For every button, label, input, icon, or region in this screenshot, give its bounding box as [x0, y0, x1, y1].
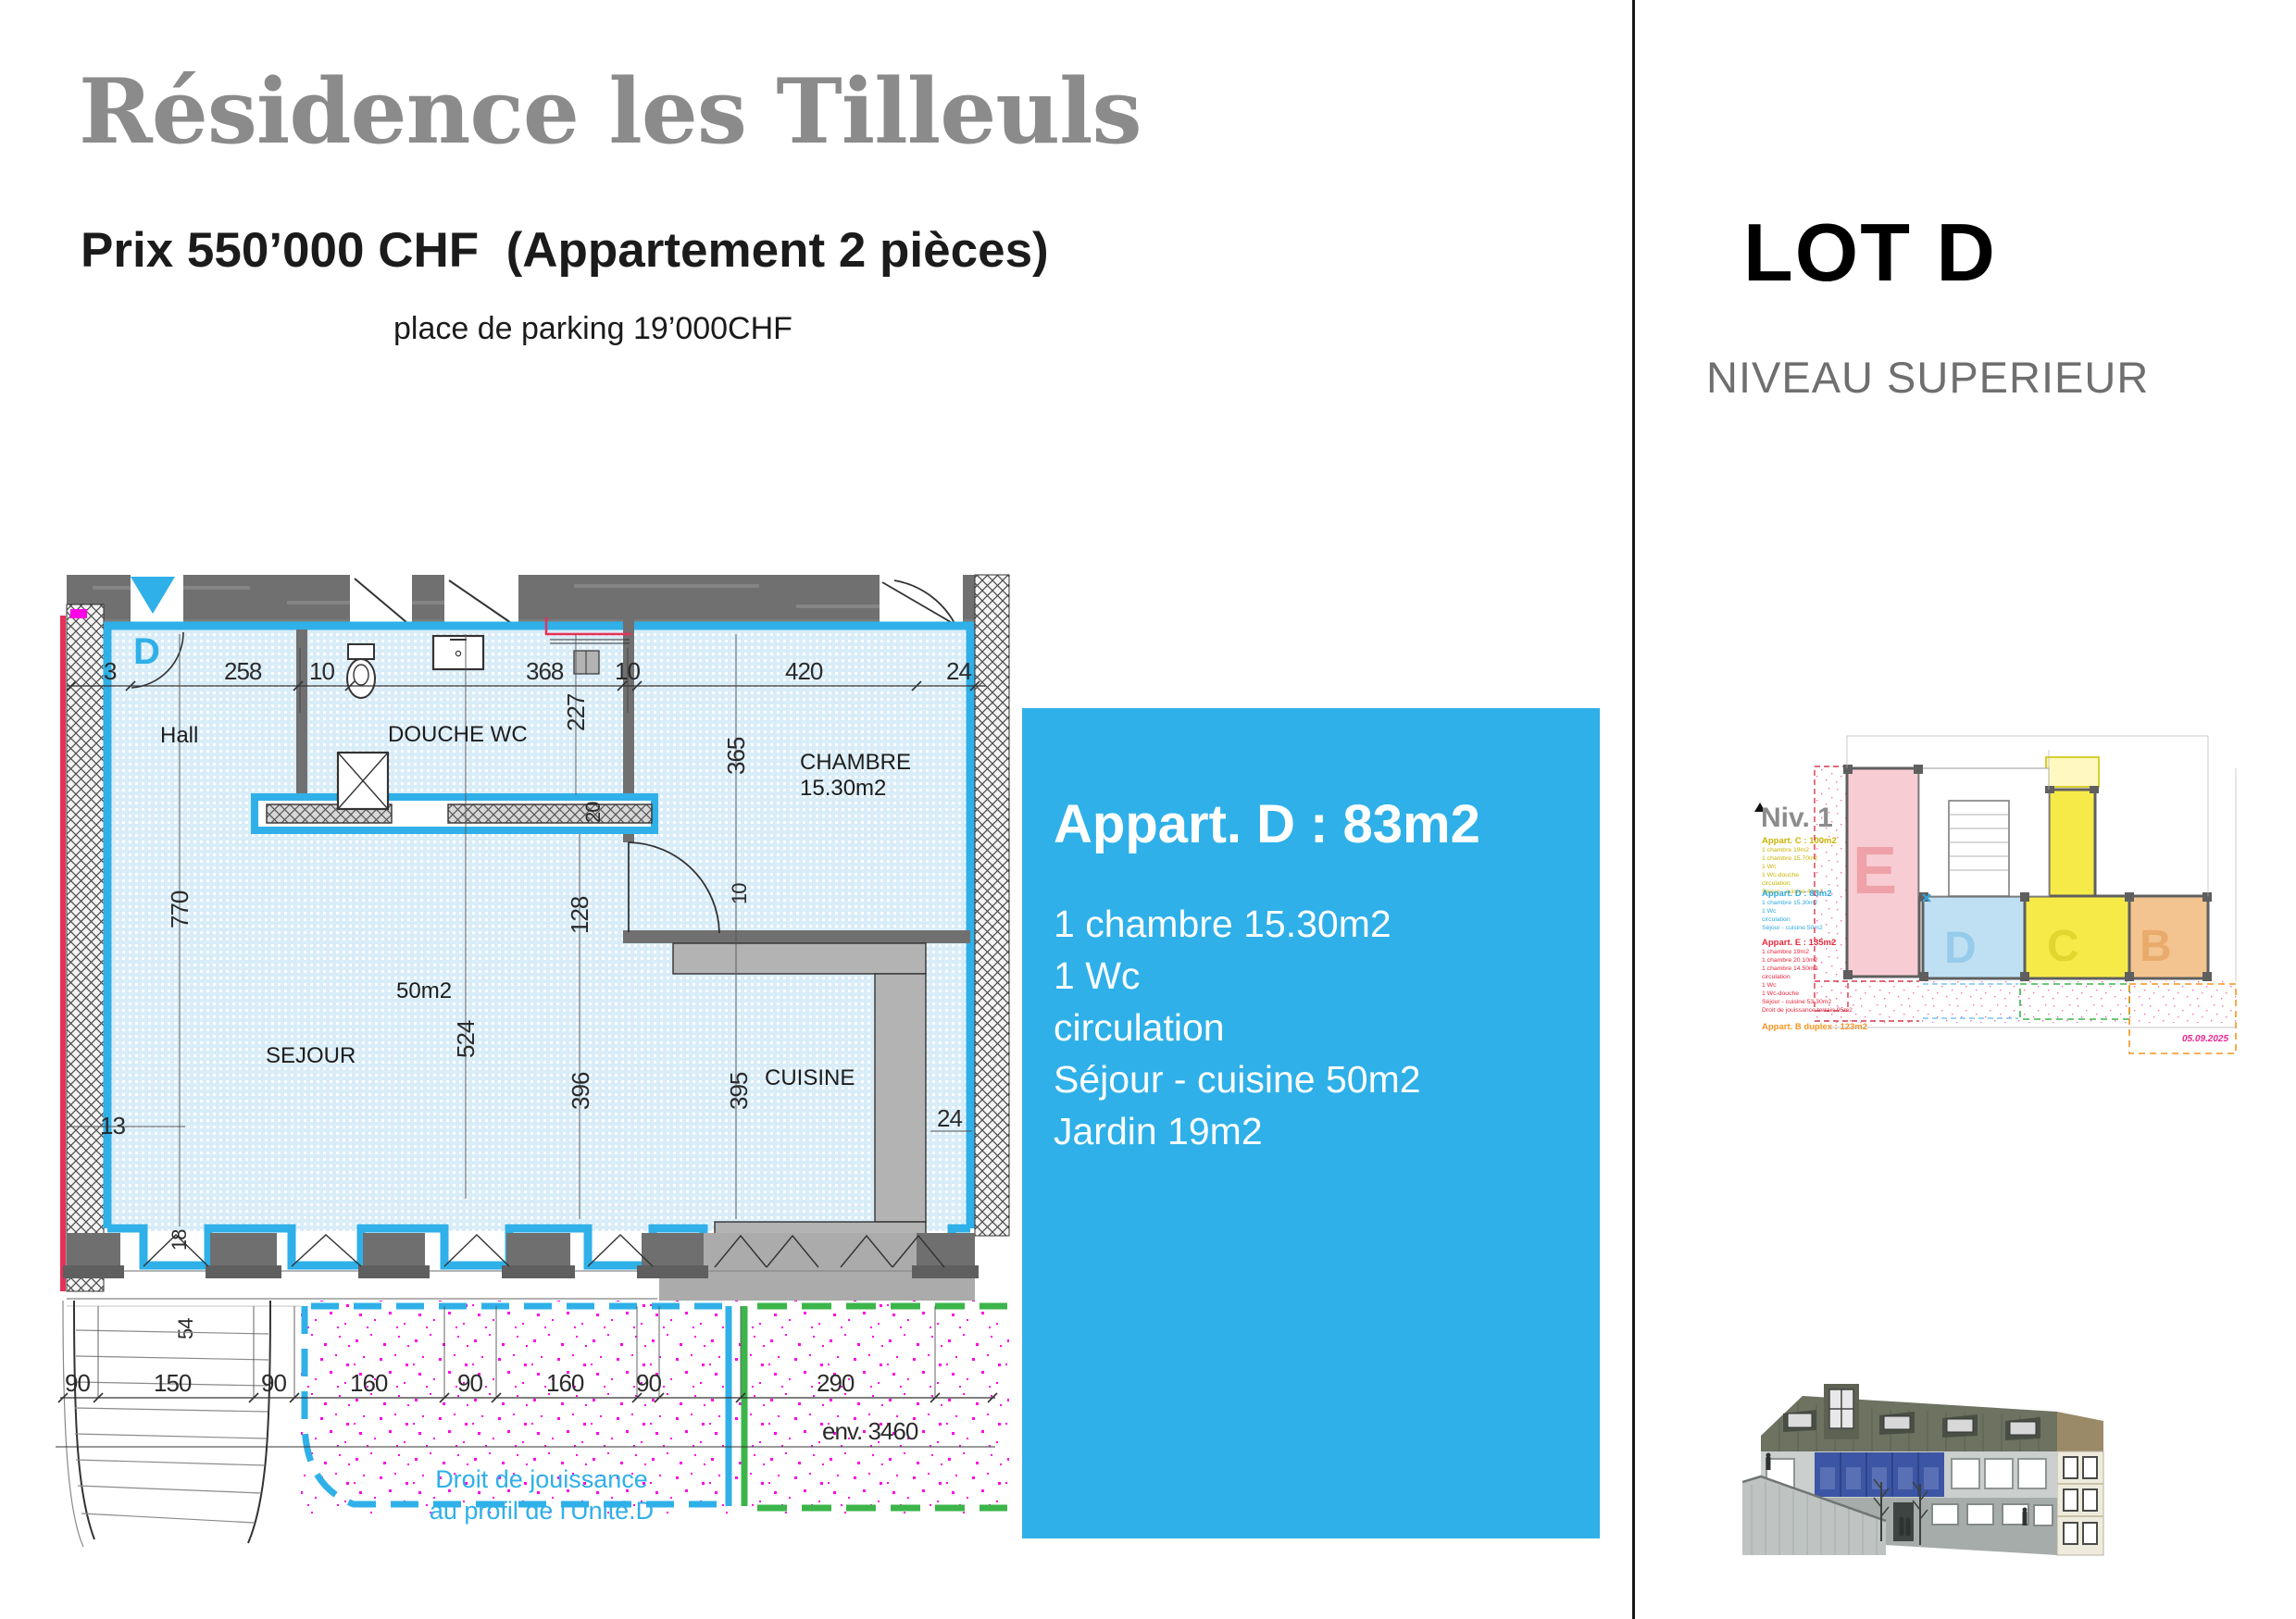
dim-24-side: 24 — [937, 1104, 962, 1132]
page-divider — [1632, 0, 1635, 1619]
room-hall: Hall — [160, 723, 198, 748]
lot-title: LOT D — [1639, 205, 2102, 300]
plan-letter-e: E — [1853, 834, 1897, 908]
room-sejour-area: 50m2 — [396, 978, 452, 1003]
site-plan-panel: Niv. 1 Appart. C : 100m2 1 chambre 19m21… — [1754, 699, 2296, 1097]
gdim-env3460: env. 3460 — [822, 1417, 918, 1445]
room-chambre-area: 15.30m2 — [800, 776, 886, 801]
building-elevation-drawing — [1742, 1364, 2140, 1563]
dim-20: 20 — [581, 802, 605, 823]
page-title: Résidence les Tilleuls — [79, 59, 1142, 164]
gdim-160a: 160 — [350, 1369, 388, 1397]
level-subtitle: NIVEAU SUPERIEUR — [1706, 352, 2149, 403]
room-douche-wc: DOUCHE WC — [388, 722, 528, 747]
apartment-info-title: Appart. D : 83m2 — [1054, 793, 1600, 855]
dim-258: 258 — [224, 657, 262, 685]
unit-letter-label: D — [133, 631, 160, 672]
exterior-stairs — [63, 1301, 270, 1547]
dim-395: 395 — [725, 1072, 753, 1110]
gdim-90c: 90 — [457, 1369, 482, 1397]
price-line: Prix 550’000 CHF (Appartement 2 pièces) — [81, 222, 1049, 279]
gdim-90b: 90 — [261, 1369, 286, 1397]
room-chambre: CHAMBRE — [800, 750, 911, 775]
dim-13: 13 — [100, 1112, 125, 1140]
dim-3: 3 — [104, 657, 117, 685]
plan-letter-d: D — [1944, 924, 1977, 973]
gdim-90a: 90 — [65, 1369, 90, 1397]
room-sejour: SEJOUR — [266, 1043, 356, 1068]
plan-letter-b: B — [2140, 922, 2172, 971]
dim-54: 54 — [174, 1318, 197, 1339]
plan-letter-c: C — [2047, 922, 2079, 971]
list-item: 1 Wc — [1054, 950, 1600, 1002]
dim-368: 368 — [526, 657, 564, 685]
garden-note-line2: au profil de l'Unité.D — [430, 1497, 654, 1525]
gdim-160b: 160 — [546, 1369, 584, 1397]
dim-128: 128 — [566, 896, 593, 934]
parking-line: place de parking 19’000CHF — [393, 311, 792, 347]
garden-note-line1: Droit de jouissance — [435, 1465, 648, 1493]
gdim-290: 290 — [817, 1369, 855, 1397]
dim-396: 396 — [567, 1072, 594, 1110]
gdim-150: 150 — [154, 1369, 192, 1397]
dim-24-top: 24 — [946, 657, 971, 685]
list-item: 1 chambre 15.30m2 — [1054, 898, 1600, 950]
dim-227: 227 — [562, 693, 590, 731]
dim-770: 770 — [166, 890, 193, 928]
dim-420: 420 — [785, 657, 823, 685]
apartment-info-lines: 1 chambre 15.30m21 WccirculationSéjour -… — [1054, 898, 1600, 1157]
dim-10a: 10 — [309, 657, 334, 685]
dim-10b: 10 — [615, 657, 640, 685]
apartment-info-box: Appart. D : 83m2 1 chambre 15.30m21 Wcci… — [1022, 708, 1600, 1538]
list-item: Séjour - cuisine 50m2 — [1054, 1053, 1600, 1105]
dim-10c: 10 — [728, 883, 751, 904]
gdim-90d: 90 — [636, 1369, 661, 1397]
room-cuisine: CUISINE — [765, 1065, 855, 1090]
list-item: circulation — [1054, 1002, 1600, 1053]
floor-plan-drawing: D — [56, 560, 1018, 1551]
dim-365: 365 — [722, 737, 750, 775]
flyer-page: Résidence les Tilleuls Prix 550’000 CHF … — [0, 0, 2296, 1619]
site-plan-drawing: E D C B — [1810, 713, 2273, 1083]
list-item: Jardin 19m2 — [1054, 1105, 1600, 1157]
dim-524: 524 — [452, 1020, 480, 1058]
